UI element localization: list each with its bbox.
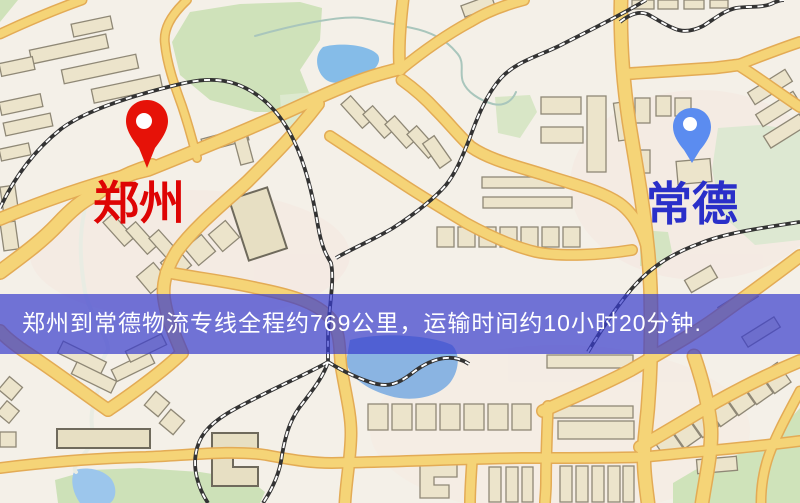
map-canvas[interactable]: 常德 郑州 郑州到常德物流专线全程约769公里，运输时间约10小时20分钟. — [0, 0, 800, 503]
destination-pin-hole — [683, 117, 697, 131]
route-info-text: 郑州到常德物流专线全程约769公里，运输时间约10小时20分钟. — [22, 310, 702, 336]
destination-city-label: 常德 — [646, 179, 738, 230]
route-info-banner: 郑州到常德物流专线全程约769公里，运输时间约10小时20分钟. — [0, 294, 800, 354]
map-screenshot: 常德 郑州 郑州到常德物流专线全程约769公里，运输时间约10小时20分钟. — [0, 0, 800, 503]
origin-city-label: 郑州 — [93, 178, 185, 229]
origin-pin-hole — [136, 113, 152, 129]
